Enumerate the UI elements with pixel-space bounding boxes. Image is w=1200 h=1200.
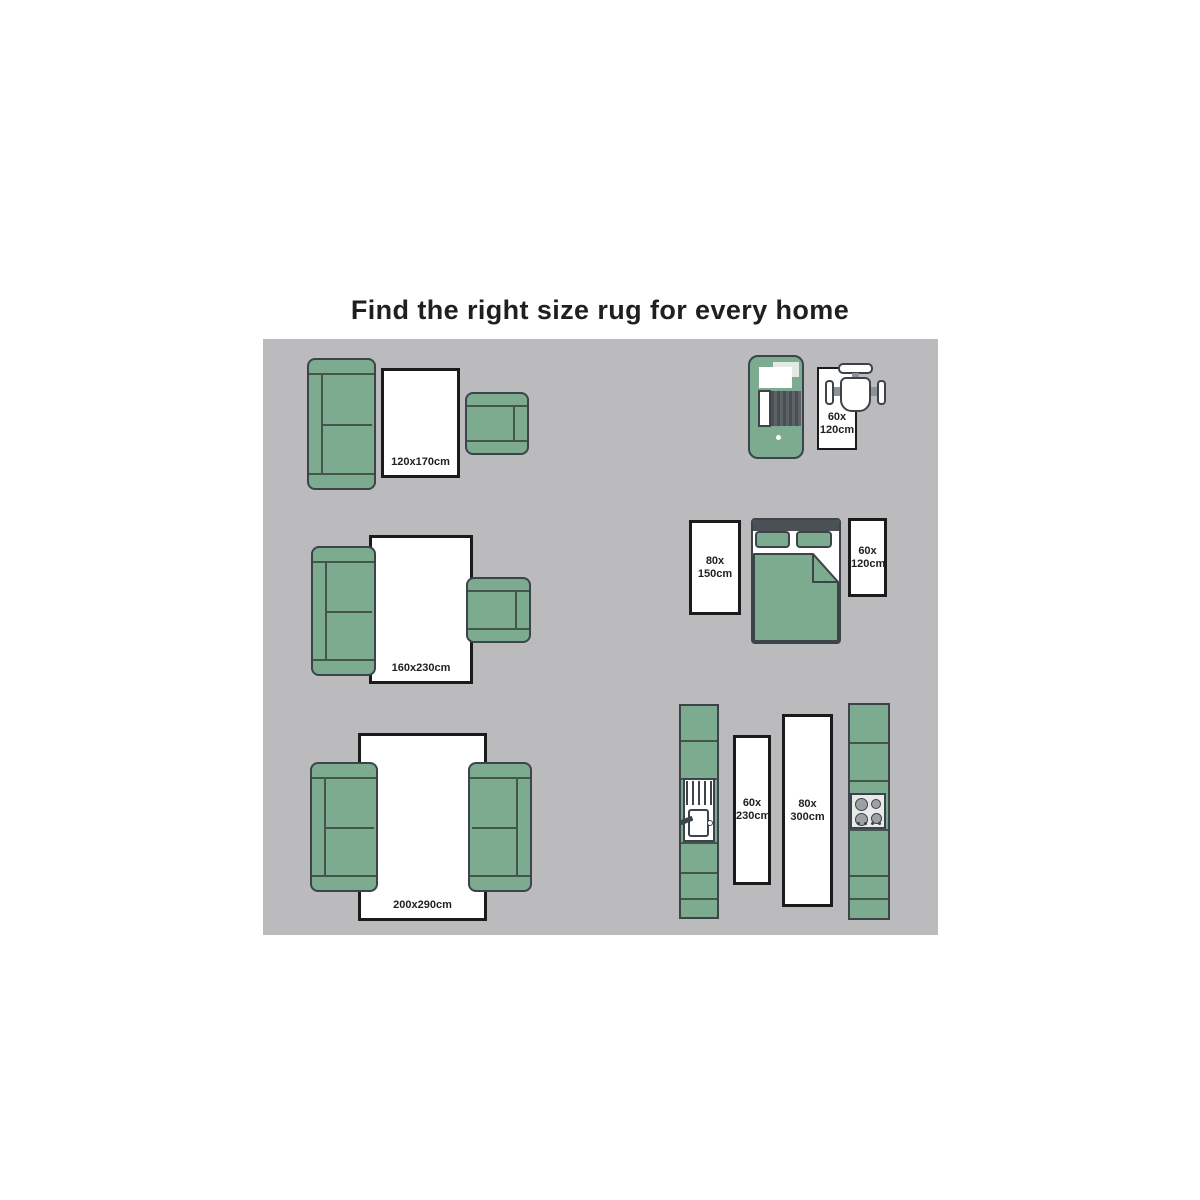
duvet-icon: [753, 553, 839, 642]
sofa-armrest-line: [470, 777, 530, 779]
sofa-armrest-line: [470, 875, 530, 877]
cooktop-knob-icon: [878, 822, 881, 825]
page-title: Find the right size rug for every home: [0, 295, 1200, 326]
sofa-armrest-line: [309, 373, 374, 375]
rug-size-line: 300cm: [790, 811, 824, 823]
cabinet-line: [850, 742, 888, 744]
rug-size-line: 60x: [828, 411, 846, 423]
rug-160x230: 160x230cm: [369, 535, 473, 684]
cooktop-knob-icon: [871, 822, 874, 825]
armchair-armrest-line: [467, 440, 527, 442]
kitchen-counter-icon: [848, 703, 890, 920]
sofa-icon: [468, 762, 532, 892]
doormat-icon: [759, 367, 792, 388]
bed-headboard-icon: [753, 520, 839, 531]
rug-120x170: 120x170cm: [381, 368, 460, 478]
door-panel-icon: [758, 390, 771, 427]
armchair-icon: [465, 392, 529, 455]
rug-size-label: 60x 120cm: [851, 545, 884, 571]
rug-60x230-runner: 60x 230cm: [733, 735, 771, 885]
cooktop-knob-icon: [864, 822, 867, 825]
pillow-icon: [755, 531, 790, 548]
rug-size-label: 60x 120cm: [819, 411, 855, 437]
rug-size-label: 120x170cm: [384, 456, 457, 469]
office-chair-armrest-icon: [825, 380, 834, 405]
rug-size-line: 230cm: [736, 810, 770, 822]
sofa-armrest-line: [312, 777, 376, 779]
floorplan-panel: 120x170cm 160x230cm 200x290cm: [263, 339, 938, 935]
burner-icon: [871, 799, 881, 809]
cabinet-line: [681, 898, 717, 900]
cabinet-line: [681, 740, 717, 742]
rug-size-label: 80x 300cm: [785, 798, 830, 824]
sofa-armrest-line: [313, 561, 374, 563]
armchair-armrest-line: [467, 405, 527, 407]
cabinet-line: [850, 875, 888, 877]
rug-60x120-bedside: 60x 120cm: [848, 518, 887, 597]
armchair-icon: [466, 577, 531, 643]
pillow-icon: [796, 531, 832, 548]
sofa-cushion-line: [327, 611, 372, 613]
burner-icon: [855, 798, 868, 811]
sink-basin-icon: [688, 809, 709, 837]
sofa-cushion-line: [326, 827, 374, 829]
sofa-icon: [311, 546, 376, 676]
rug-size-line: 60x: [743, 797, 761, 809]
armchair-backrest-line: [513, 407, 515, 440]
rug-80x300-runner: 80x 300cm: [782, 714, 833, 907]
sofa-armrest-line: [312, 875, 376, 877]
rug-size-line: 80x: [706, 555, 724, 567]
sofa-cushion-line: [472, 827, 516, 829]
open-doorway-icon: [771, 391, 801, 426]
sofa-cushion-line: [323, 424, 372, 426]
rug-size-line: 60x: [858, 545, 876, 557]
rug-size-line: 80x: [798, 798, 816, 810]
cabinet-line: [681, 872, 717, 874]
rug-size-label: 60x 230cm: [736, 797, 768, 823]
armchair-armrest-line: [468, 590, 529, 592]
sofa-armrest-line: [313, 659, 374, 661]
infographic-canvas: Find the right size rug for every home 1…: [0, 0, 1200, 1200]
cabinet-line: [850, 898, 888, 900]
rug-size-line: 150cm: [698, 568, 732, 580]
cabinet-line: [850, 780, 888, 782]
bed-icon: [751, 518, 841, 644]
rug-80x150-bedside: 80x 150cm: [689, 520, 741, 615]
cabinet-line: [850, 829, 888, 831]
door-handle-icon: [776, 435, 781, 440]
armchair-armrest-line: [468, 628, 529, 630]
entry-door-icon: [748, 355, 804, 459]
cooktop-knob-icon: [857, 822, 860, 825]
armchair-backrest-line: [515, 592, 517, 628]
sofa-armrest-line: [309, 473, 374, 475]
rug-size-line: 120cm: [820, 424, 854, 436]
sink-icon: [683, 778, 715, 842]
sink-drain-icon: [707, 820, 713, 826]
cabinet-line: [681, 842, 717, 844]
kitchen-counter-icon: [679, 704, 719, 919]
rug-size-label: 160x230cm: [372, 662, 470, 675]
sofa-icon: [310, 762, 378, 892]
rug-size-label: 200x290cm: [361, 899, 484, 912]
sofa-backrest-line: [516, 779, 518, 875]
rug-size-label: 80x 150cm: [692, 555, 738, 581]
sofa-icon: [307, 358, 376, 490]
rug-size-line: 120cm: [851, 558, 885, 570]
sink-drainboard-icon: [686, 781, 712, 805]
office-chair-armrest-icon: [877, 380, 886, 405]
cooktop-icon: [850, 793, 886, 829]
office-chair-seat-icon: [840, 377, 871, 412]
